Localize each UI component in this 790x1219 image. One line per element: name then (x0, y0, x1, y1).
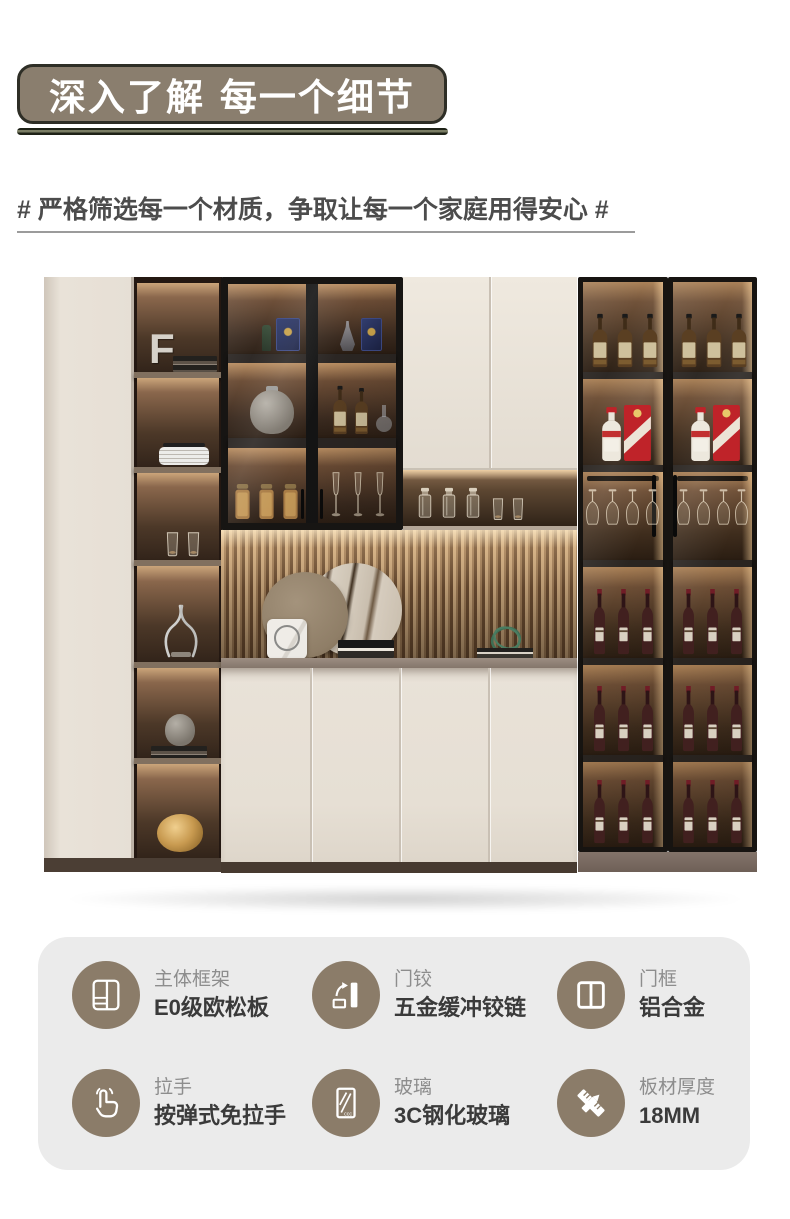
door-gap (488, 668, 490, 862)
book-stack (173, 356, 217, 372)
floor-shadow (60, 886, 750, 912)
board-thickness-icon (557, 1069, 625, 1137)
drinking-glasses (163, 530, 207, 558)
wine-bottles (673, 778, 752, 844)
champagne-flutes (326, 470, 390, 520)
whiskey-shelf (583, 282, 663, 372)
base-cabinet (221, 668, 577, 862)
moutai-shelf (583, 379, 663, 465)
glass-decanter (340, 321, 355, 351)
feature-label: 门框 (639, 969, 705, 991)
display-cell-giftboxes (228, 284, 306, 354)
left-plinth (44, 858, 222, 872)
small-bottle (262, 325, 271, 351)
hands-sculpture (153, 600, 209, 658)
upper-closed-cabinet (403, 277, 577, 470)
feature-board-thickness: 板材厚度 18MM (557, 1050, 750, 1155)
round-gray-vase (250, 390, 294, 434)
feature-value: 五金缓冲铰链 (394, 995, 526, 1020)
left-side-panel (44, 277, 134, 858)
tempered-glass-icon: ccc (312, 1069, 380, 1137)
wine-cabinet-plinth (578, 852, 757, 872)
door-gap (489, 277, 491, 468)
feature-main-frame: 主体框架 E0级欧松板 (72, 947, 312, 1042)
whiskey-bottles (673, 311, 752, 369)
feature-value: 铝合金 (639, 995, 705, 1020)
clock-face (274, 625, 300, 651)
wine-shelf (583, 762, 663, 847)
whiskey-bottles (583, 311, 663, 369)
shelf-niche-vase-books (137, 668, 219, 758)
display-cell-decanter (318, 284, 396, 354)
whiskey-bottles (328, 383, 396, 435)
moutai-bottle-and-box (684, 402, 744, 462)
shelf-niche-books: F (137, 283, 219, 372)
moutai-bottle-and-box (595, 402, 655, 462)
door-hinge-icon (312, 961, 380, 1029)
feature-handle: 拉手 按弹式免拉手 (72, 1050, 312, 1155)
light-strip (403, 470, 577, 480)
plate-stack (159, 447, 209, 465)
wine-bottles (583, 684, 663, 752)
wine-bottles (583, 778, 663, 844)
book-stack (477, 648, 533, 658)
wine-cabinet-right-unit (668, 277, 757, 852)
wine-bottles (673, 684, 752, 752)
book-stack (151, 746, 207, 758)
door-gap (310, 668, 312, 862)
feature-label: 主体框架 (154, 969, 269, 991)
feature-value: E0级欧松板 (154, 995, 269, 1020)
shelf-niche-sculpture (137, 566, 219, 662)
shelf-niche-glasses (137, 473, 219, 560)
feature-value: 3C钢化玻璃 (394, 1103, 510, 1128)
wine-cabinet-left-unit (578, 277, 668, 852)
lit-glassware-niche (403, 470, 577, 530)
display-cell-vase (228, 363, 306, 438)
stemware-rack (587, 476, 659, 481)
wine-bottles (673, 587, 752, 655)
feature-label: 板材厚度 (639, 1077, 715, 1099)
display-cell-jars (228, 448, 306, 523)
open-shelf-column: F (134, 277, 222, 858)
door-gap (399, 668, 401, 862)
wine-shelf (673, 762, 752, 847)
press-handle-icon (72, 1069, 140, 1137)
feature-label: 门铰 (394, 969, 526, 991)
feature-hinge: 门铰 五金缓冲铰链 (312, 947, 557, 1042)
display-cell-flutes (318, 448, 396, 523)
feature-glass: ccc 玻璃 3C钢化玻璃 (312, 1050, 557, 1155)
hanging-wine-glasses (673, 486, 752, 532)
wine-shelf (673, 567, 752, 658)
book-stack (338, 640, 394, 658)
blue-gift-box (361, 318, 382, 351)
base-plinth (221, 862, 577, 873)
stemware-rack (677, 476, 748, 481)
svg-text:ccc: ccc (344, 1111, 352, 1117)
gold-vase (157, 814, 203, 852)
preserve-jars (232, 483, 302, 520)
door-frame-icon (557, 961, 625, 1029)
wine-shelf (583, 665, 663, 755)
blue-gift-box (276, 318, 300, 351)
cabinet-mullion (306, 284, 318, 523)
wine-shelf (583, 567, 663, 658)
feature-value: 按弹式免拉手 (154, 1103, 286, 1128)
feature-value: 18MM (639, 1103, 715, 1128)
door-handle (301, 489, 304, 519)
glass-display-cabinet (221, 277, 403, 530)
cabinet-frame-icon (72, 961, 140, 1029)
door-handle (320, 489, 323, 519)
feature-label: 拉手 (154, 1077, 286, 1099)
whiskey-shelf (673, 282, 752, 372)
display-cell-whiskey (318, 363, 396, 438)
shelf-niche-gold-vase (137, 764, 219, 858)
small-vase (165, 714, 195, 746)
wine-shelf (673, 665, 752, 755)
marble-clock (267, 619, 307, 659)
letter-bookend: F (149, 328, 175, 370)
wine-bottles (583, 587, 663, 655)
glassware-set (413, 483, 533, 523)
shelf-niche-plates (137, 378, 219, 467)
feature-label: 玻璃 (394, 1077, 510, 1099)
hanging-wine-glasses (583, 486, 663, 532)
countertop (221, 658, 577, 668)
stemware-shelf (673, 472, 752, 560)
product-photo: F (0, 0, 790, 932)
features-card: 主体框架 E0级欧松板 门铰 五金缓冲铰链 门框 铝合金 (38, 937, 750, 1170)
stemware-shelf (583, 472, 663, 560)
moutai-shelf (673, 379, 752, 465)
feature-door-frame: 门框 铝合金 (557, 947, 750, 1042)
